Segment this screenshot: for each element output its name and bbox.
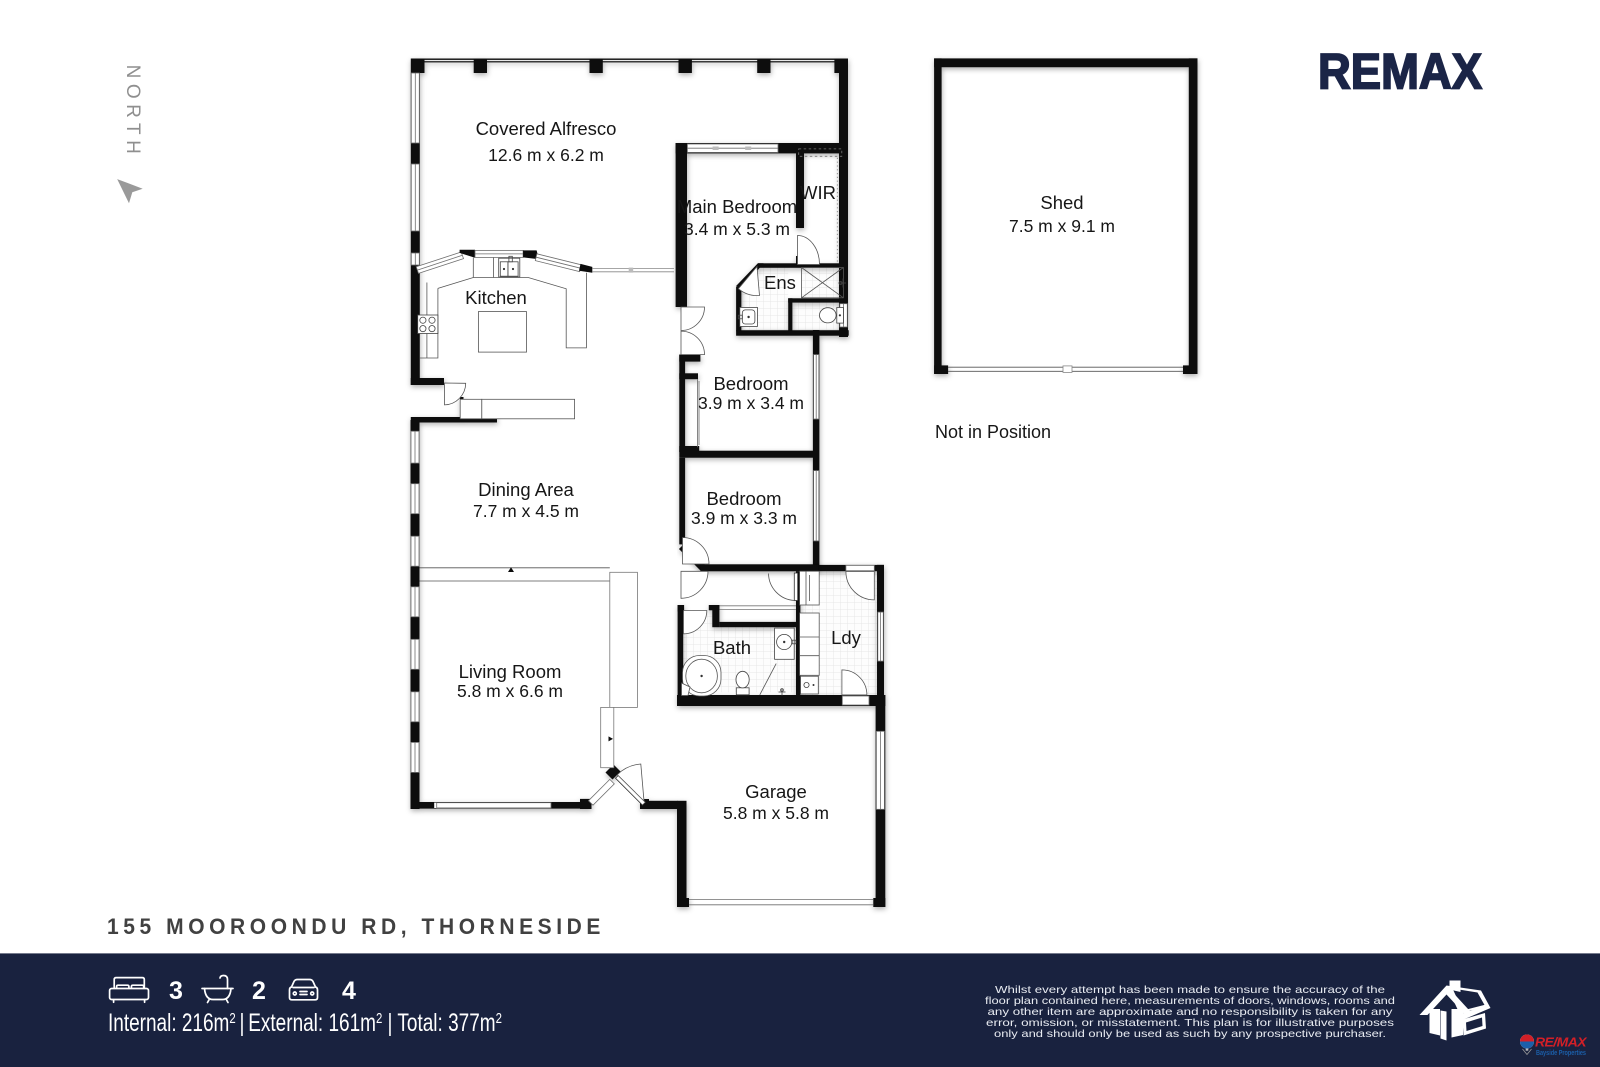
svg-text:Ens: Ens [764,272,796,293]
svg-text:Covered Alfresco: Covered Alfresco [476,118,617,139]
svg-text:RE/MAX: RE/MAX [1535,1036,1587,1050]
svg-text:Main Bedroom: Main Bedroom [677,196,797,217]
svg-text:5.8 m x 6.6 m: 5.8 m x 6.6 m [457,681,563,701]
svg-text:only and should only be used a: only and should only be used as such by … [994,1028,1386,1040]
svg-text:REMAX: REMAX [1318,44,1482,100]
svg-text:5.8 m x 5.8 m: 5.8 m x 5.8 m [723,803,829,823]
svg-text:Dining Area: Dining Area [478,479,574,500]
svg-text:3.9 m x 3.4 m: 3.9 m x 3.4 m [698,393,804,413]
svg-text:3.4 m x 5.3 m: 3.4 m x 5.3 m [684,219,790,239]
svg-text:7.7 m x 4.5 m: 7.7 m x 4.5 m [473,501,579,521]
svg-text:NORTH: NORTH [122,65,143,160]
svg-text:Garage: Garage [745,781,807,802]
svg-text:155 MOOROONDU RD, THORNESIDE: 155 MOOROONDU RD, THORNESIDE [107,914,605,939]
svg-text:Internal: 216m2 | External: 16: Internal: 216m2 | External: 161m2 | Tota… [108,1008,502,1036]
svg-text:2: 2 [252,977,266,1005]
svg-text:Ldy: Ldy [831,627,862,648]
svg-text:Shed: Shed [1040,192,1083,213]
svg-text:12.6 m x 6.2 m: 12.6 m x 6.2 m [488,145,604,165]
svg-text:WIR: WIR [800,182,836,203]
svg-text:3.9 m x 3.3 m: 3.9 m x 3.3 m [691,508,797,528]
svg-text:Kitchen: Kitchen [465,287,527,308]
svg-text:4: 4 [342,977,356,1005]
svg-text:Bayside Properties: Bayside Properties [1536,1050,1586,1057]
svg-text:Bedroom: Bedroom [706,488,781,509]
svg-text:7.5 m x 9.1 m: 7.5 m x 9.1 m [1009,216,1115,236]
svg-text:Bath: Bath [713,637,751,658]
svg-text:Living Room: Living Room [459,661,562,682]
svg-text:Not in Position: Not in Position [935,422,1051,442]
svg-text:Bedroom: Bedroom [713,373,788,394]
svg-text:3: 3 [169,977,183,1005]
